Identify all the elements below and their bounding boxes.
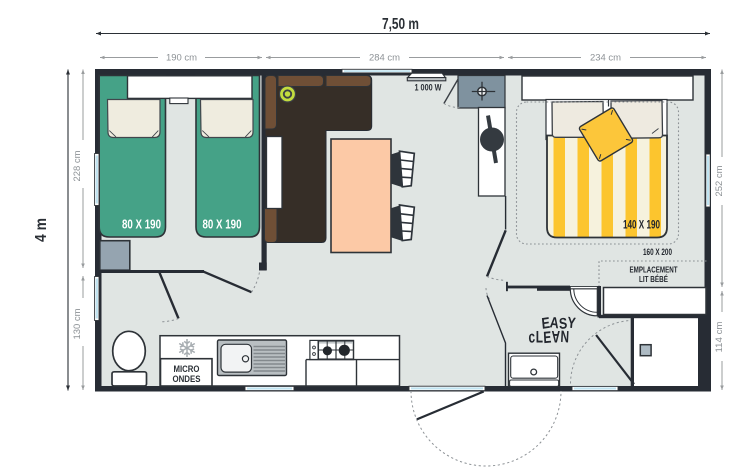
svg-text:234 cm: 234 cm xyxy=(590,53,621,63)
svg-text:L: L xyxy=(536,329,543,347)
svg-text:114 cm: 114 cm xyxy=(714,321,724,352)
svg-text:284 cm: 284 cm xyxy=(369,53,400,63)
svg-text:130 cm: 130 cm xyxy=(72,308,82,339)
svg-text:252 cm: 252 cm xyxy=(714,165,724,196)
svg-text:80 X 190: 80 X 190 xyxy=(203,217,242,232)
svg-text:E: E xyxy=(543,329,552,348)
svg-text:c: c xyxy=(528,328,536,347)
svg-text:A: A xyxy=(552,326,561,344)
svg-text:140 X 190: 140 X 190 xyxy=(623,220,660,232)
svg-text:228 cm: 228 cm xyxy=(72,150,82,181)
svg-text:1 000 W: 1 000 W xyxy=(415,83,443,93)
svg-text:7,50 m: 7,50 m xyxy=(382,16,419,33)
svg-text:N: N xyxy=(560,328,569,347)
svg-text:160 X 200: 160 X 200 xyxy=(643,247,672,257)
svg-text:EMPLACEMENT: EMPLACEMENT xyxy=(630,265,679,275)
svg-text:190 cm: 190 cm xyxy=(166,53,197,63)
svg-text:4 m: 4 m xyxy=(33,218,50,242)
svg-text:ONDES: ONDES xyxy=(173,374,201,385)
svg-text:LIT BÉBÉ: LIT BÉBÉ xyxy=(639,274,668,284)
svg-text:80 X 190: 80 X 190 xyxy=(122,217,161,232)
